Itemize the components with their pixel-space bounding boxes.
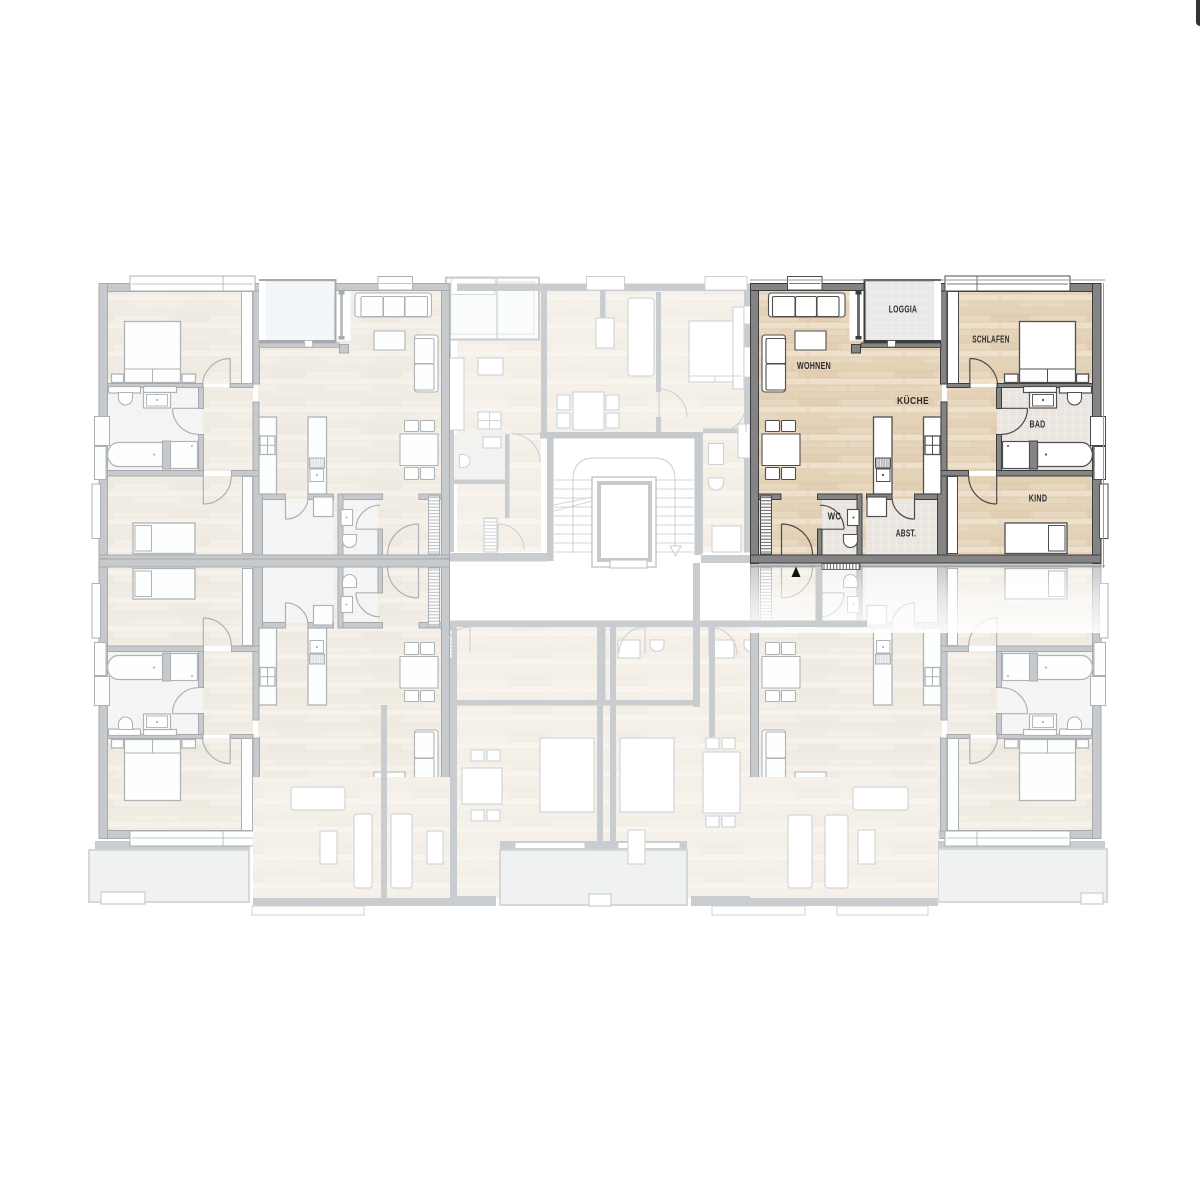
svg-text:BAD: BAD [1030, 420, 1046, 431]
svg-text:KÜCHE: KÜCHE [897, 394, 929, 407]
svg-text:SCHLAFEN: SCHLAFEN [972, 335, 1010, 346]
svg-text:LOGGIA: LOGGIA [889, 305, 918, 316]
svg-text:WC: WC [828, 512, 842, 523]
svg-text:ABST.: ABST. [896, 529, 917, 540]
svg-text:WOHNEN: WOHNEN [797, 361, 831, 372]
svg-text:KIND: KIND [1029, 494, 1048, 505]
